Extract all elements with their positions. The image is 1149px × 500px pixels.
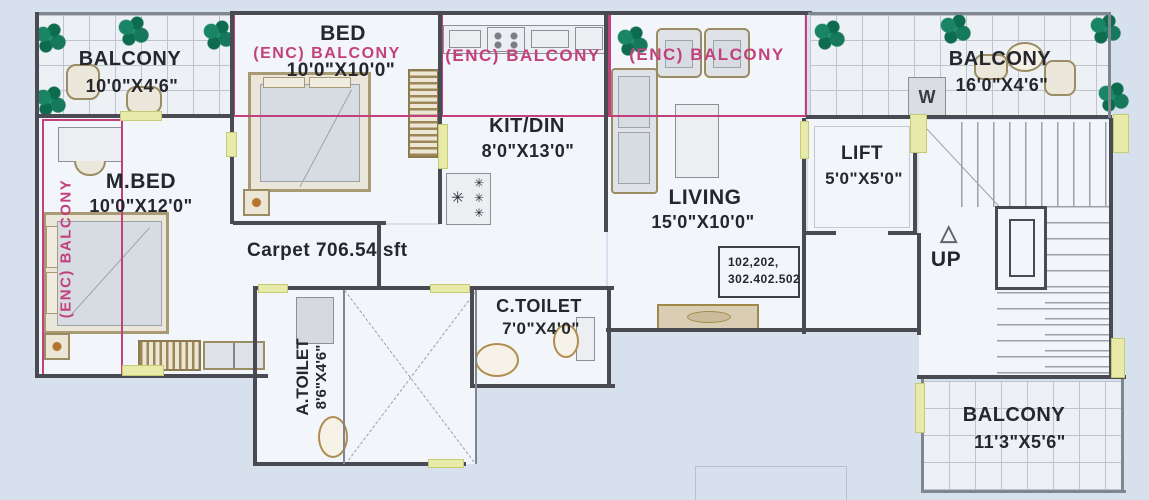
lift-name: LIFT <box>841 143 883 165</box>
wall <box>808 12 1110 15</box>
kit-din-dims: 8'0"X13'0" <box>482 141 575 162</box>
enc-balcony-outline-living <box>609 13 807 117</box>
wall <box>606 328 917 332</box>
plant-icon <box>1088 14 1122 46</box>
wall <box>233 221 386 225</box>
open-shaft <box>345 290 476 464</box>
stairs-up-label: UP <box>931 248 961 272</box>
floor-plan: ✳ ✳ ✳ ✳ W △ <box>0 0 1149 500</box>
door-opening <box>800 121 809 159</box>
wall <box>230 12 234 136</box>
wall <box>438 12 442 128</box>
wall <box>604 12 608 232</box>
balcony-bottom-right-dims: 11'3"X5'6" <box>974 432 1066 453</box>
stair-core-inner <box>1009 219 1035 277</box>
washing-machine: W <box>908 77 946 117</box>
balcony-top-left-dims: 10'0"X4'6" <box>86 76 179 97</box>
plant-icon <box>116 16 150 48</box>
balcony-bottom-right-name: BALCONY <box>963 404 1065 427</box>
enc-balcony-label-living: (ENC) BALCONY <box>629 45 785 65</box>
balcony-top-right-dims: 16'0"X4'6" <box>956 75 1049 96</box>
wall <box>475 290 477 464</box>
plant-icon <box>1096 82 1130 114</box>
carpet-area-note: Carpet 706.54 sft <box>247 240 408 262</box>
m-bed-name: M.BED <box>106 170 176 194</box>
wall <box>607 286 611 388</box>
door-opening <box>120 111 162 121</box>
unit-numbers-line2: 302.402.502 <box>728 271 798 288</box>
stair-treads-top <box>961 122 1111 207</box>
door-opening <box>122 365 164 376</box>
up-triangle-icon: △ <box>940 220 957 246</box>
lobby-floor <box>806 235 917 330</box>
freezer-icon: ✳ <box>451 188 464 208</box>
door-opening <box>428 459 464 468</box>
bedside-flower-table <box>243 189 270 216</box>
balcony-top-left-name: BALCONY <box>79 48 181 71</box>
fridge: ✳ ✳ ✳ ✳ <box>446 173 491 225</box>
stair-treads-bottom <box>997 292 1111 376</box>
sofa-cushion <box>618 132 650 184</box>
washing-machine-label: W <box>919 87 936 108</box>
a-toilet-label-block: A.TOILET 8'6"X4'6" <box>293 302 337 452</box>
m-bed-dims: 10'0"X12'0" <box>89 196 192 217</box>
wall <box>917 233 921 335</box>
enc-balcony-label-kitchen: (ENC) BALCONY <box>445 46 601 66</box>
door-opening <box>430 284 470 293</box>
wall <box>806 115 1112 119</box>
unit-numbers-box: 102,202, 302.402.502 <box>718 246 800 298</box>
freezer-icon: ✳ <box>474 191 484 205</box>
door-opening <box>226 132 237 157</box>
plant-icon <box>812 20 846 52</box>
door-opening <box>910 114 927 153</box>
a-toilet-dims: 8'6"X4'6" <box>313 302 330 452</box>
wash-basin <box>475 343 519 377</box>
wall <box>1121 379 1124 493</box>
wall <box>230 154 234 224</box>
wall <box>35 12 39 378</box>
dresser-divider <box>233 343 235 368</box>
lift-dims: 5'0"X5'0" <box>825 169 903 189</box>
porch-outline <box>695 466 847 500</box>
wall <box>1108 12 1111 118</box>
wall <box>230 11 812 15</box>
a-toilet-name: A.TOILET <box>293 302 313 452</box>
freezer-icon: ✳ <box>474 206 484 220</box>
bed-room-dims: 10'0"X10'0" <box>287 60 396 82</box>
door-opening <box>258 284 288 293</box>
wall <box>343 290 345 464</box>
tv-unit-detail <box>687 311 731 323</box>
door-opening <box>1111 338 1125 378</box>
enc-balcony-outline-mbed <box>42 119 123 376</box>
living-name: LIVING <box>668 186 741 210</box>
wall <box>35 12 232 15</box>
kit-din-name: KIT/DIN <box>489 115 565 138</box>
enc-balcony-label-mbed: (ENC) BALCONY <box>58 169 75 329</box>
living-dims: 15'0"X10'0" <box>651 212 754 233</box>
c-toilet-dims: 7'0"X4'0" <box>502 319 580 339</box>
plant-icon <box>938 14 972 46</box>
freezer-icon: ✳ <box>474 176 484 190</box>
door-opening <box>1113 114 1129 153</box>
wall <box>917 375 1126 379</box>
balcony-top-right-name: BALCONY <box>949 48 1051 71</box>
bed-room-name: BED <box>320 22 366 46</box>
lift-door-opening <box>836 230 888 237</box>
wall <box>470 288 474 387</box>
wall <box>470 384 615 388</box>
door-opening <box>915 383 925 433</box>
c-toilet-name: C.TOILET <box>496 296 582 317</box>
wall <box>253 286 257 466</box>
door-opening <box>438 124 448 169</box>
wall <box>438 166 442 224</box>
unit-numbers-line1: 102,202, <box>728 254 798 271</box>
wall <box>921 490 1126 493</box>
